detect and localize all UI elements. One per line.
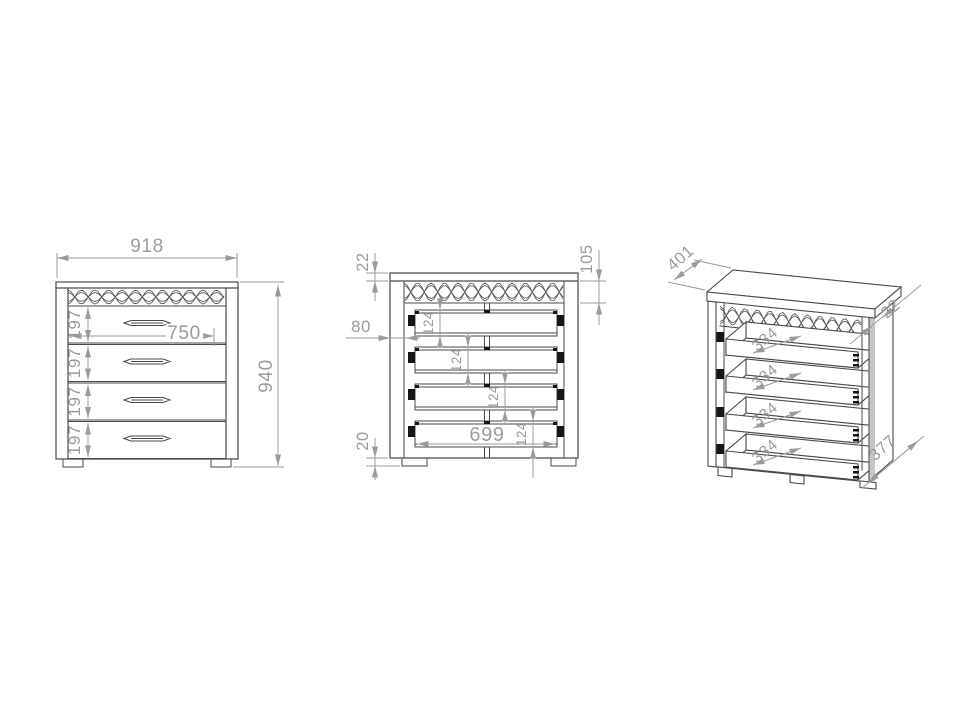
dim-inner-width: 699 [417,424,555,446]
dim-box-height-3: 124 [486,371,505,423]
svg-text:699: 699 [469,424,504,446]
iso-drawer-box-1 [716,322,878,368]
isometric-side-view: 401 22 334 334 334 334 377 [664,242,924,489]
carcass-lattice-pattern [404,283,563,301]
front-right-foot [211,459,231,467]
drawer-handle-4 [124,436,170,441]
svg-text:197: 197 [65,309,84,339]
svg-text:197: 197 [65,386,84,416]
dim-box-height-2: 124 [449,334,468,386]
dim-box-height-1: 124 [421,297,440,349]
dim-overall-height: 940 [233,282,284,467]
iso-left-panel [708,301,716,467]
svg-text:124: 124 [421,311,436,335]
svg-text:22: 22 [354,252,372,272]
svg-text:401: 401 [664,242,698,275]
carcass-left-foot [402,458,427,466]
front-top-panel [56,282,238,288]
iso-left-foot [718,467,732,477]
svg-text:80: 80 [351,317,371,336]
svg-text:124: 124 [449,348,464,372]
dim-text-750: 750 [167,323,201,344]
dim-drawer-height-4: 197 [65,423,88,457]
dim-top-rail-height: 105 [578,244,606,325]
dim-overall-width: 918 [57,236,237,278]
dim-text-940: 940 [256,359,277,393]
dim-drawer-height-3: 197 [65,385,88,419]
carcass-drawer-box-2 [408,347,564,373]
svg-text:124: 124 [486,385,501,409]
iso-middle-foot [790,475,804,485]
carcass-right-foot [551,458,576,466]
dim-top-thickness: 22 [354,252,388,301]
svg-text:197: 197 [65,348,84,378]
front-lattice-pattern [68,290,224,304]
dim-plinth-height: 20 [354,431,400,480]
svg-text:197: 197 [65,425,84,455]
dim-text-918: 918 [130,236,164,257]
drawer-handle-1 [124,321,170,326]
drawer-handle-3 [124,398,170,403]
svg-text:20: 20 [354,431,372,451]
front-elevation-view: 918 940 750 197 197 197 19 [56,236,284,467]
carcass-section-view: 22 105 80 124 124 [346,244,606,480]
drawing-sheet: 918 940 750 197 197 197 19 [0,0,961,721]
dim-drawer-height-2: 197 [65,346,88,380]
svg-text:124: 124 [514,422,529,446]
svg-text:105: 105 [578,244,596,273]
drawer-handle-2 [124,359,170,364]
front-left-foot [63,459,83,467]
drawing-canvas: 918 940 750 197 197 197 19 [0,0,961,721]
dim-box-height-4: 124 [514,408,533,478]
